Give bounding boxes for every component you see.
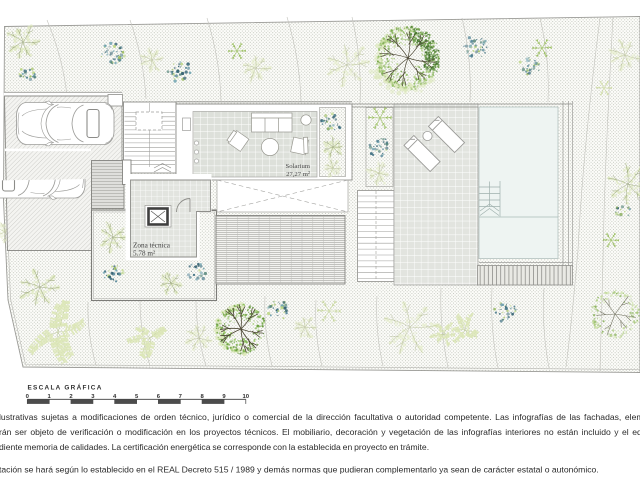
svg-text:Zona técnica: Zona técnica xyxy=(133,242,171,250)
svg-text:diente memoria de calidades. L: diente memoria de calidades. La certific… xyxy=(0,442,429,452)
svg-text:tación se hará según lo establ: tación se hará según lo establecido en e… xyxy=(0,465,599,475)
svg-text:5.78 m²: 5.78 m² xyxy=(133,249,155,257)
svg-text:27,27 m²: 27,27 m² xyxy=(286,171,310,178)
svg-text:lustrativas sujetas a modifica: lustrativas sujetas a modificaciones de … xyxy=(0,412,640,422)
svg-text:ESCALA GRÁFICA: ESCALA GRÁFICA xyxy=(28,383,103,392)
svg-text:rán ser objeto de verificación: rán ser objeto de verificación o modific… xyxy=(0,427,640,437)
svg-text:Solarium: Solarium xyxy=(285,163,310,170)
